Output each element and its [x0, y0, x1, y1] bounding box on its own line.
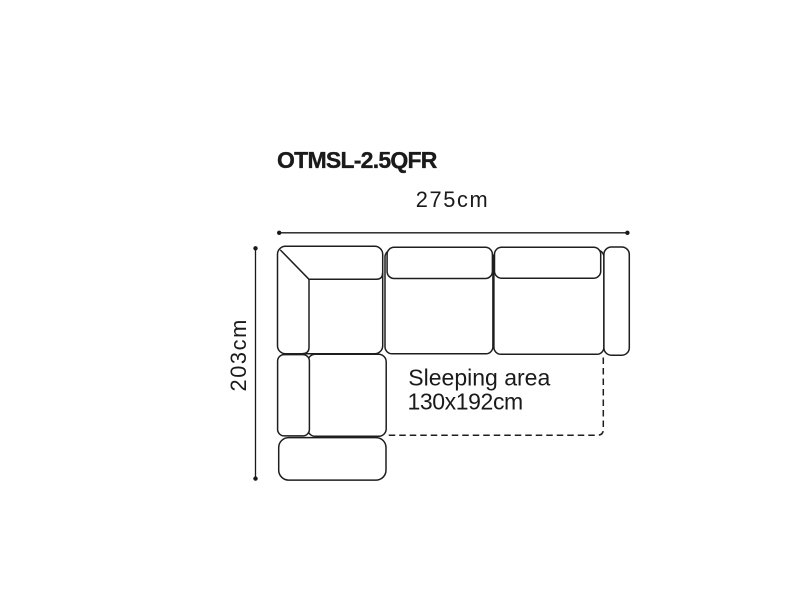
svg-text:OTMSL-2.5QFR: OTMSL-2.5QFR — [277, 147, 438, 173]
svg-text:203cm: 203cm — [226, 318, 251, 391]
svg-text:130x192cm: 130x192cm — [408, 389, 523, 415]
svg-text:Sleeping area: Sleeping area — [408, 365, 550, 391]
svg-text:275cm: 275cm — [416, 187, 489, 212]
